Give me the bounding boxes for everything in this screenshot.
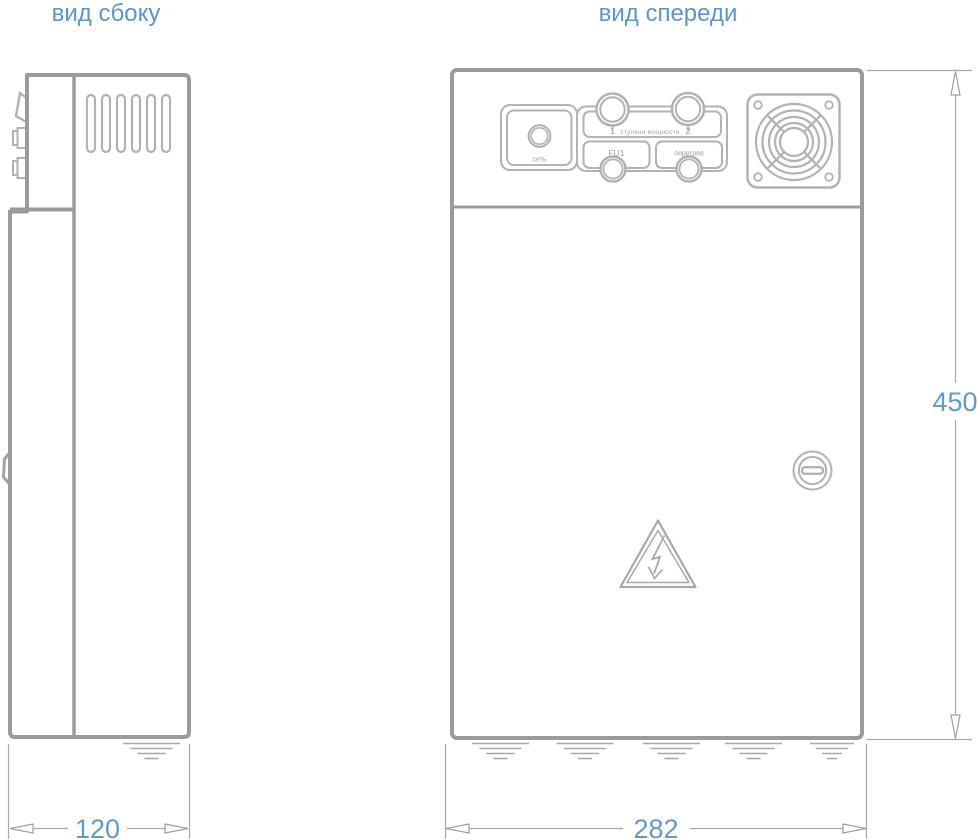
- ground-hatch-icon: [810, 744, 854, 759]
- ground-hatch-icon: [472, 744, 529, 759]
- power-indicator-label: сеть: [532, 157, 546, 164]
- dimension-arrow-left: [446, 824, 469, 833]
- side-depth-value: 120: [75, 814, 120, 840]
- front-view-title: вид спереди: [599, 0, 738, 27]
- dimension-front-width: 282: [446, 744, 867, 840]
- drawing-svg: вид сбоку вид спереди: [0, 0, 977, 840]
- step-1-label: 1: [610, 126, 615, 137]
- power-steps-label: ступени мощности: [620, 129, 679, 136]
- ground-hatch-icon: [725, 744, 782, 759]
- side-view-title: вид сбоку: [52, 0, 161, 27]
- front-width-value: 282: [633, 814, 678, 840]
- dimension-height: 450: [867, 71, 977, 740]
- side-cabinet-outline: [10, 75, 189, 737]
- height-value: 450: [932, 387, 977, 417]
- fan-hub: [780, 128, 808, 156]
- ground-hatch-icon: [123, 744, 180, 759]
- front-view: сеть ступени мощности 1 2 FU1 перегр: [446, 70, 977, 840]
- technical-drawing-canvas: вид сбоку вид спереди: [0, 0, 977, 840]
- step-2-label: 2: [685, 126, 690, 137]
- dimension-arrow-bottom: [951, 715, 960, 739]
- ground-hatch-icon: [643, 744, 700, 759]
- ground-hatch-icon: [557, 744, 614, 759]
- dimension-arrow-right: [165, 824, 188, 833]
- dimension-arrow-right: [843, 824, 866, 833]
- side-view: 120: [4, 74, 190, 840]
- ground-hatch-row: [472, 744, 854, 759]
- dimension-arrow-left: [10, 824, 33, 833]
- dimension-side-depth: 120: [9, 744, 190, 840]
- dimension-arrow-top: [951, 72, 960, 96]
